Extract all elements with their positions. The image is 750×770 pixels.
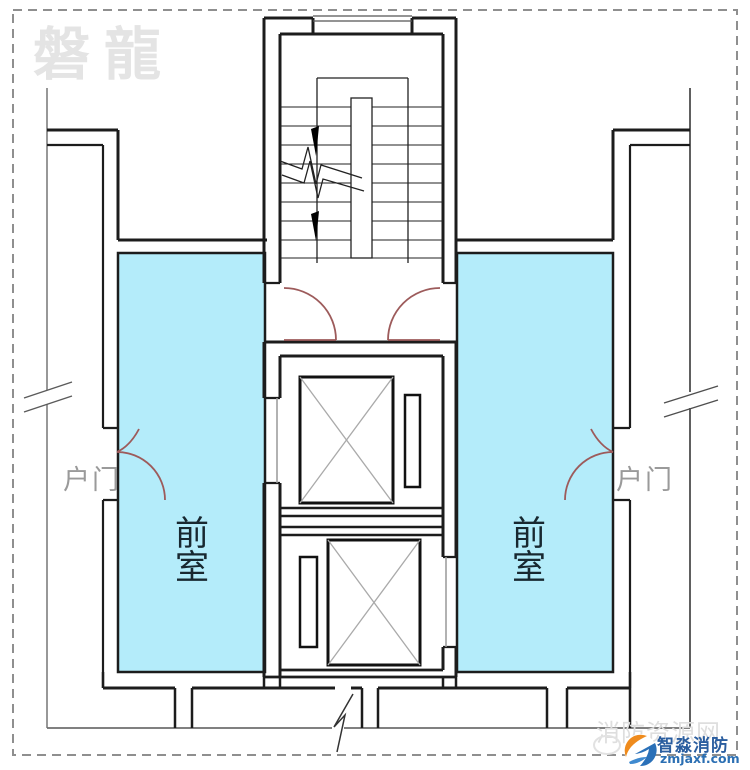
vestibule-left: 前 室 xyxy=(118,253,265,672)
right-break-mark-icon xyxy=(664,386,718,417)
entry-door-label-left: 户门 xyxy=(63,465,121,496)
shaft-divider-walls xyxy=(280,508,443,535)
vestibule-right-label-2: 室 xyxy=(512,548,546,588)
left-break-mark-icon xyxy=(24,382,72,412)
elevator-1 xyxy=(300,377,420,503)
logo-domain-text: zmjaxf.com xyxy=(660,751,740,766)
stair-window xyxy=(313,16,412,21)
stair-door-right-leaf xyxy=(388,288,440,340)
bottom-walls xyxy=(103,672,630,752)
elevator-2 xyxy=(300,540,420,665)
bottom-wall-openings xyxy=(175,688,630,728)
watermark-text: 磐龍 xyxy=(33,21,175,88)
vestibule-right-area xyxy=(457,253,613,672)
bottom-break-mark-icon xyxy=(334,694,353,752)
stair-direction-arrow-down xyxy=(311,211,319,241)
floor-plan-svg: 磐龍 前 室 前 室 户门 户门 xyxy=(0,0,750,770)
bottom-wall-connectors xyxy=(103,672,630,688)
stair-doors xyxy=(284,288,440,340)
elevator-2-counterweight xyxy=(300,557,317,647)
vestibule-left-area xyxy=(118,253,265,672)
lobby-top-wall xyxy=(264,342,456,356)
stair-direction-arrow-up xyxy=(311,126,319,156)
stairwell xyxy=(280,78,443,263)
vestibule-right: 前 室 xyxy=(457,253,613,672)
vestibule-left-label-2: 室 xyxy=(175,548,209,588)
floorplan-image: 磐龍 前 室 前 室 户门 户门 xyxy=(0,0,750,770)
entry-door-label-right: 户门 xyxy=(616,465,674,496)
logo: 消防资源网 智淼消防 zmjaxf.com xyxy=(594,719,740,766)
stair-door-left-leaf xyxy=(284,288,336,340)
shaft-bottom-wall xyxy=(264,670,456,677)
elevator-1-counterweight xyxy=(405,395,420,487)
